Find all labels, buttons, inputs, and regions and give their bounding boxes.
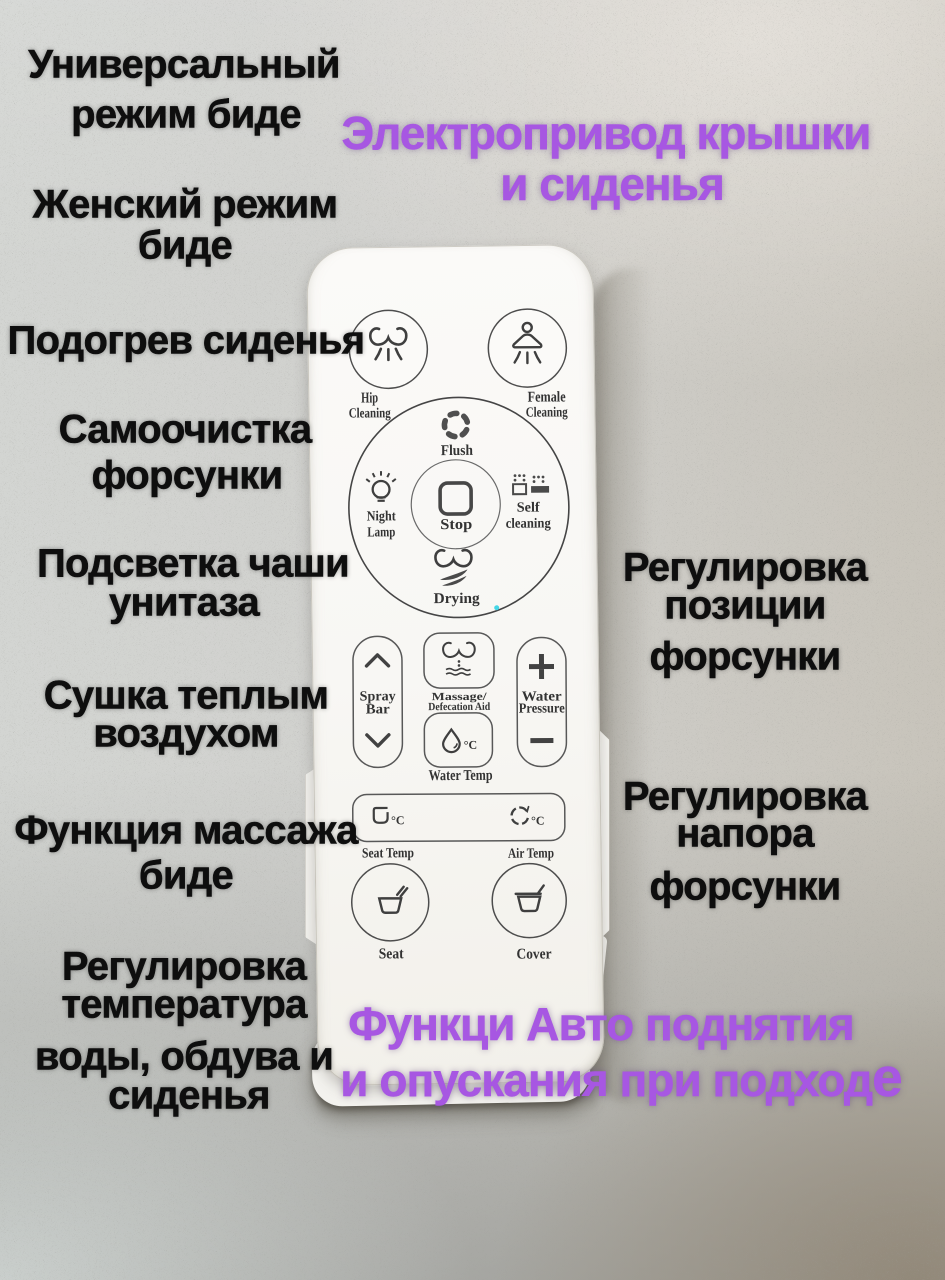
svg-text:Defecation Aid: Defecation Aid [428,701,490,713]
svg-text:Self: Self [517,501,540,516]
svg-text:Hip: Hip [361,390,378,406]
svg-text:Seat: Seat [379,946,404,962]
svg-text:cleaning: cleaning [506,516,551,531]
svg-text:°C: °C [464,738,478,752]
svg-text:Night: Night [367,509,396,524]
svg-text:°C: °C [391,813,405,827]
svg-text:Bar: Bar [366,702,390,717]
svg-text:Air Temp: Air Temp [508,846,554,861]
svg-text:Flush: Flush [441,443,474,459]
svg-text:Cover: Cover [516,946,551,962]
svg-text:Water Temp: Water Temp [429,768,493,784]
svg-text:Drying: Drying [434,591,481,607]
svg-text:Lamp: Lamp [367,525,395,540]
svg-text:Cleaning: Cleaning [526,405,568,420]
svg-text:Female: Female [528,389,566,405]
svg-text:Pressure: Pressure [519,701,565,716]
svg-text:Cleaning: Cleaning [349,406,391,421]
svg-text:°C: °C [531,814,545,828]
svg-text:Seat Temp: Seat Temp [362,846,414,861]
svg-text:Stop: Stop [440,517,472,533]
